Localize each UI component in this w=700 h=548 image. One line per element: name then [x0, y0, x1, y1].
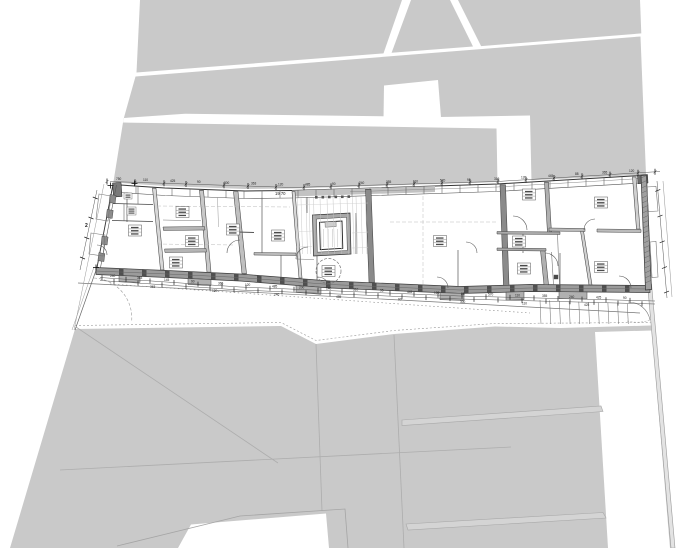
svg-text:110: 110 [413, 180, 418, 184]
svg-text:200: 200 [299, 285, 305, 289]
svg-text:240: 240 [110, 274, 116, 278]
svg-text:300: 300 [224, 181, 230, 185]
svg-text:425: 425 [584, 303, 590, 307]
svg-text:310: 310 [494, 177, 500, 181]
svg-text:240: 240 [569, 295, 575, 299]
svg-text:120: 120 [245, 283, 251, 287]
svg-text:485: 485 [305, 183, 311, 187]
svg-text:90: 90 [197, 180, 201, 184]
svg-text:95: 95 [467, 178, 471, 182]
svg-text:120: 120 [434, 291, 440, 295]
svg-text:570: 570 [488, 293, 494, 297]
svg-text:95: 95 [380, 289, 384, 293]
svg-text:425: 425 [596, 296, 602, 300]
svg-text:240: 240 [274, 292, 280, 296]
svg-text:750: 750 [116, 177, 122, 181]
svg-text:363: 363 [137, 276, 143, 280]
svg-text:140: 140 [326, 287, 332, 291]
svg-text:120: 120 [212, 289, 218, 293]
svg-text:145: 145 [164, 278, 170, 282]
svg-text:90: 90 [623, 296, 627, 300]
svg-text:110: 110 [143, 178, 148, 182]
svg-text:120: 120 [521, 176, 527, 180]
svg-text:355: 355 [386, 180, 392, 184]
svg-text:363: 363 [150, 285, 156, 289]
svg-text:310: 310 [353, 288, 359, 292]
svg-text:240: 240 [359, 181, 365, 185]
svg-text:90: 90 [332, 182, 336, 186]
svg-text:2: 2 [85, 223, 88, 229]
svg-text:120: 120 [629, 169, 635, 173]
svg-text:110: 110 [515, 293, 520, 297]
svg-text:363: 363 [251, 182, 257, 186]
svg-text:365: 365 [218, 282, 224, 286]
svg-text:445: 445 [407, 290, 413, 294]
svg-text:300: 300 [460, 300, 466, 304]
svg-text:90: 90 [398, 298, 402, 302]
svg-text:88: 88 [575, 172, 579, 176]
svg-text:365: 365 [602, 171, 608, 175]
svg-text:90: 90 [191, 280, 195, 284]
svg-text:88: 88 [461, 292, 465, 296]
svg-text:570: 570 [440, 179, 446, 183]
svg-text:425: 425 [170, 179, 176, 183]
svg-text:445: 445 [548, 174, 554, 178]
svg-text:485: 485 [272, 284, 278, 288]
svg-text:110: 110 [522, 302, 527, 306]
svg-text:120: 120 [278, 183, 284, 187]
svg-text:485: 485 [336, 295, 342, 299]
svg-text:355: 355 [542, 294, 548, 298]
svg-text:19 70: 19 70 [275, 191, 286, 196]
